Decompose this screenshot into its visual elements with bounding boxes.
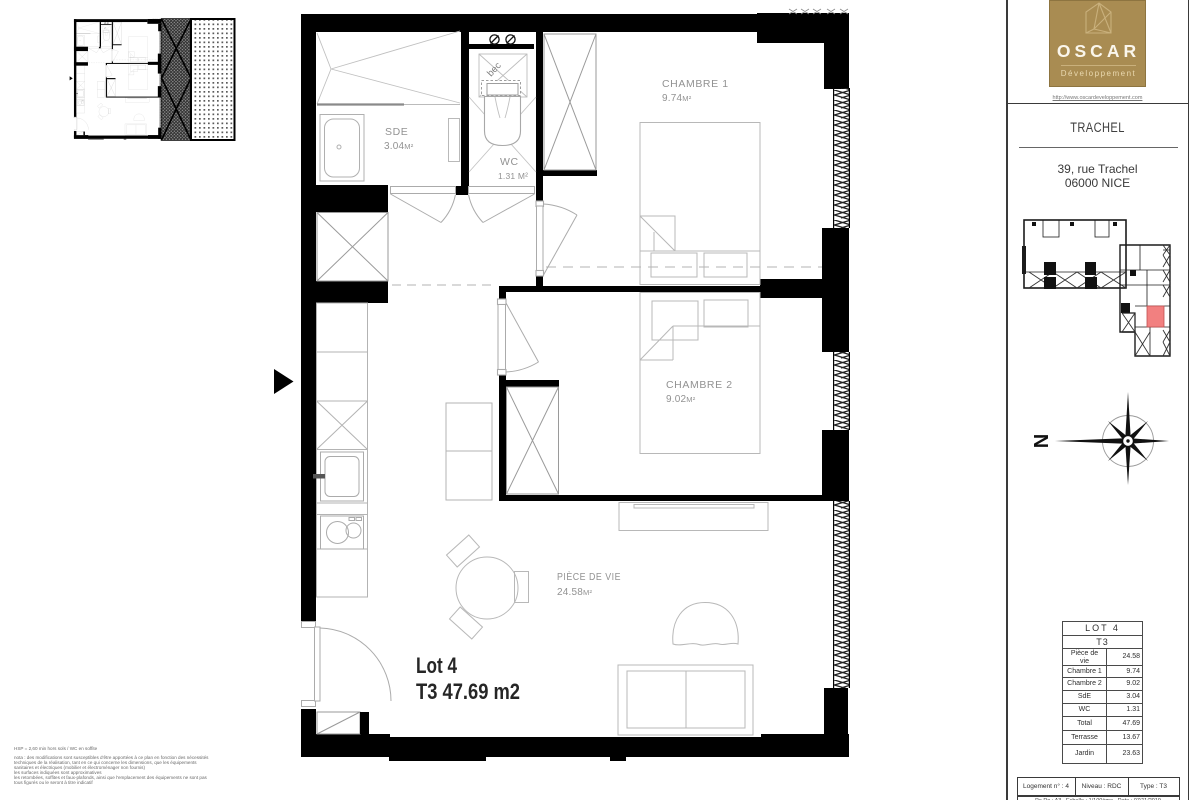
svg-text:Lot 4: Lot 4	[416, 653, 458, 678]
svg-text:CHAMBRE 2: CHAMBRE 2	[666, 379, 733, 391]
svg-text:24.58M²: 24.58M²	[557, 587, 592, 598]
svg-text:T3 47.69 m2: T3 47.69 m2	[416, 679, 520, 704]
svg-text:9.74M²: 9.74M²	[662, 93, 692, 104]
svg-text:WC: WC	[500, 156, 519, 168]
svg-text:N: N	[1031, 434, 1053, 448]
svg-text:HSP = 2,60 min hors sols / WC: HSP = 2,60 min hors sols / WC en soffite	[14, 746, 98, 751]
svg-text:CHAMBRE 1: CHAMBRE 1	[662, 78, 729, 90]
svg-text:tous figurés ou le seront à ti: tous figurés ou le seront à titre indica…	[14, 780, 93, 785]
svg-text:1.31 M²: 1.31 M²	[498, 171, 528, 181]
svg-text:3.04M²: 3.04M²	[384, 141, 414, 152]
svg-text:PIÈCE DE VIE: PIÈCE DE VIE	[557, 570, 621, 583]
svg-text:bec: bec	[485, 60, 504, 79]
svg-text:9.02M²: 9.02M²	[666, 394, 696, 405]
svg-text:SDE: SDE	[385, 126, 408, 138]
